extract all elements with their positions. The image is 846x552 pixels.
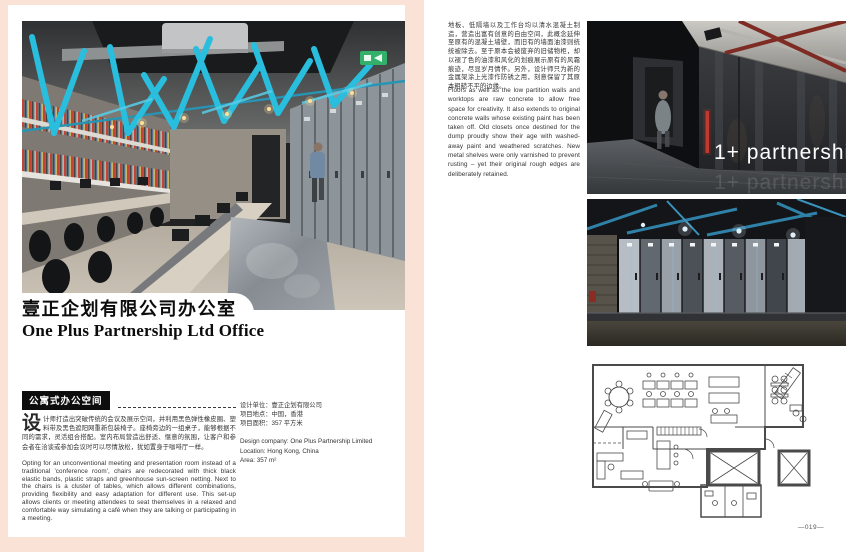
- dropcap: 设: [22, 415, 41, 433]
- info-design-company-zh: 设计单位：壹正企划有限公司: [240, 401, 402, 410]
- info-design-company-en: Design company: One Plus Partnership Lim…: [240, 437, 402, 447]
- detail-paragraph-zh: 地板、低隔墙以及工作台均以清水混凝土制造，营造出富有创意的自由空间，此概念延伸至…: [448, 22, 580, 92]
- page-number: —019—: [776, 524, 846, 531]
- exit-sign-icon: [360, 51, 387, 65]
- right-page: 地板、低隔墙以及工作台均以清水混凝土制造，营造出富有创意的自由空间，此概念延伸至…: [424, 0, 846, 552]
- left-page: 壹正企划有限公司办公室 One Plus Partnership Ltd Off…: [8, 5, 405, 537]
- info-location-en: Location: Hong Kong, China: [240, 447, 402, 457]
- project-title-zh: 壹正企划有限公司办公室: [22, 295, 392, 321]
- concrete-partition: [587, 321, 846, 346]
- red-led-strip: [706, 111, 710, 153]
- floor-plan-drawing: [587, 353, 846, 520]
- wall-lettering-reflection: 1+ partnership: [714, 171, 846, 194]
- lockers-photo: [587, 199, 846, 346]
- project-info-block: 设计单位：壹正企划有限公司 项目地点：中国，香港 项目面积：357 平方米 De…: [240, 401, 402, 466]
- locker-panels: [619, 239, 805, 315]
- info-area-zh: 项目面积：357 平方米: [240, 419, 402, 428]
- main-office-photo: [22, 21, 405, 310]
- section-tag-row: 公寓式办公空间: [22, 391, 236, 410]
- wall-lettering: 1+ partnership: [714, 141, 846, 164]
- office-illustration: [22, 21, 405, 310]
- info-location-zh: 项目地点：中国，香港: [240, 410, 402, 419]
- intro-paragraph-en: Opting for an unconventional meeting and…: [22, 460, 236, 522]
- project-title-en: One Plus Partnership Ltd Office: [22, 321, 402, 341]
- section-tag: 公寓式办公空间: [22, 391, 110, 410]
- detail-paragraph-en: Floors as well as the low partition wall…: [448, 86, 580, 179]
- intro-paragraph-zh: 设计师打造出突破传统的会议及展示空间，并利用黑色弹性橡皮圈、塑料带及黑色遮阳网重…: [22, 415, 236, 452]
- entrance-photo: 1+ partnership 1+ partnership: [587, 21, 846, 194]
- brick-column: [587, 235, 617, 317]
- dashed-rule: [118, 406, 236, 408]
- info-area-en: Area: 357 m²: [240, 456, 402, 466]
